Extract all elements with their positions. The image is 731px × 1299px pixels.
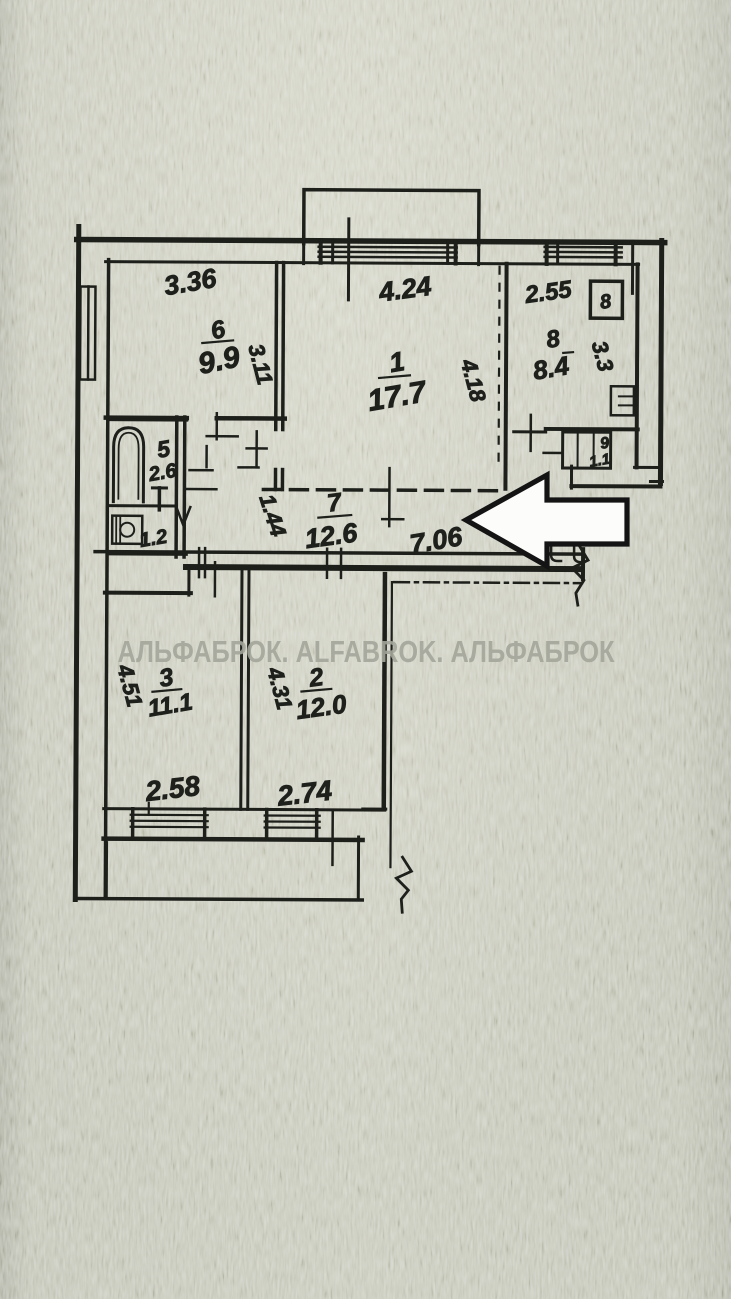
svg-text:1.2: 1.2 <box>138 526 169 552</box>
svg-text:1.1: 1.1 <box>588 451 611 471</box>
svg-text:АЛЬФАБРОК. ALFABROK. АЛЬФАБРОК: АЛЬФАБРОК. ALFABROK. АЛЬФАБРОК <box>118 634 615 669</box>
svg-text:2.74: 2.74 <box>275 775 334 812</box>
svg-text:2.58: 2.58 <box>143 770 202 807</box>
svg-text:8.4: 8.4 <box>531 350 572 386</box>
